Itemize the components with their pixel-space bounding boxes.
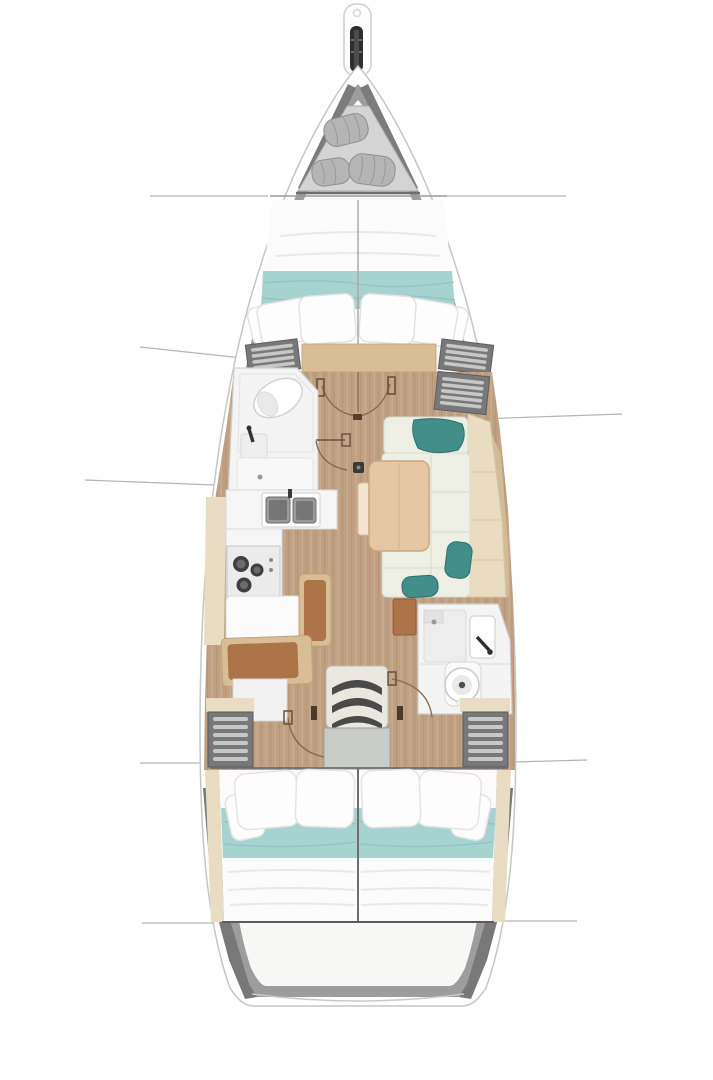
pillow-teal: [401, 575, 438, 598]
door-stop: [397, 706, 403, 720]
aft-head-cabinet: [393, 599, 416, 635]
dinette-hanging-locker: [434, 371, 490, 414]
settee-cushion: [227, 642, 298, 680]
v-berth-foot-board: [302, 344, 436, 372]
companionway-steps: [332, 680, 382, 729]
head-shower-floor: [237, 458, 313, 494]
galley-cabinet: [226, 596, 304, 642]
pillow: [298, 293, 356, 345]
door-latch: [353, 414, 362, 420]
pillow: [358, 293, 416, 345]
aft-locker-starboard: [460, 698, 510, 767]
pillow-teal: [413, 419, 465, 453]
door-stop: [311, 706, 317, 720]
bowsprit: [344, 4, 371, 76]
drain-icon: [258, 475, 263, 480]
drain-icon: [432, 620, 437, 625]
floorplan-svg: [0, 0, 713, 1080]
boat-floorplan-canvas: [0, 0, 713, 1080]
pillow: [416, 769, 483, 830]
v-berth-locker-starboard: [438, 339, 493, 375]
aft-locker-port: [206, 698, 254, 767]
pillow: [295, 769, 355, 828]
pillow: [234, 769, 301, 830]
galley-faucet-icon: [288, 489, 292, 498]
stove-icon: [227, 546, 280, 598]
pillow: [361, 769, 421, 828]
engine-box: [324, 728, 390, 772]
settee-cushion: [304, 580, 326, 641]
port-side-deck: [204, 497, 226, 645]
pillow-teal: [444, 541, 473, 580]
galley-double-sink-icon: [262, 489, 320, 527]
aft-cabins: [205, 768, 511, 922]
